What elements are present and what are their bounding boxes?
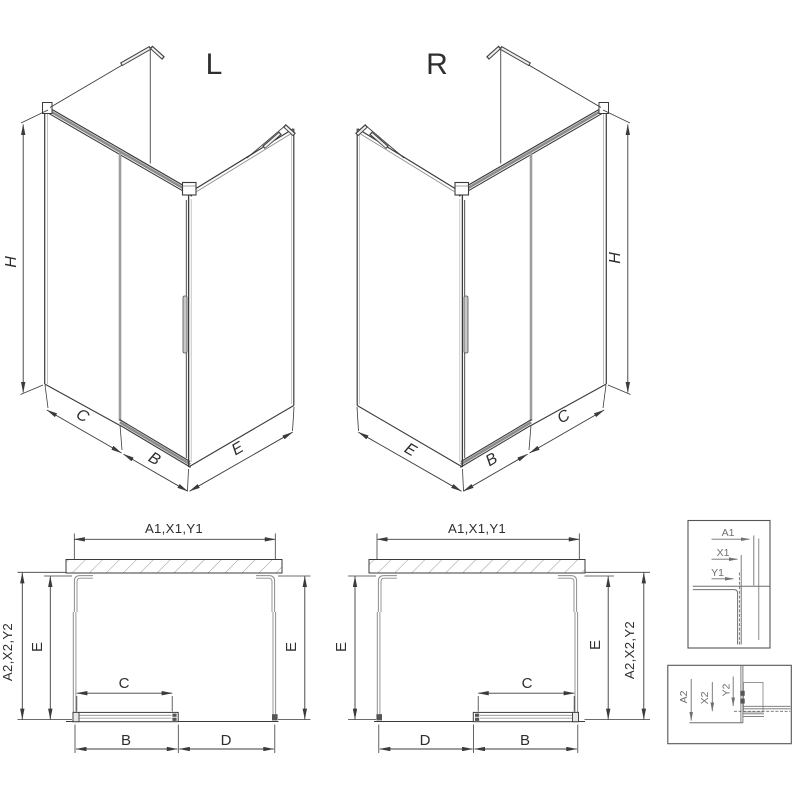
- iso-view-left: L H C B E: [3, 47, 295, 491]
- plan-view-left: A1,X1,Y1 A2,X2,Y2 E E C B D: [0, 521, 311, 753]
- dim-label-a1x1y1-right-plan: A1,X1,Y1: [448, 521, 506, 536]
- dim-label-d-left-plan: D: [221, 732, 232, 749]
- detail-dim-y2: Y2: [721, 683, 733, 696]
- dim-label-height-left: H: [3, 256, 20, 268]
- dim-label-a2x2y2-left-plan: A2,X2,Y2: [0, 623, 15, 681]
- dim-label-e1-right-plan: E: [333, 642, 350, 652]
- dim-label-b-right: B: [483, 450, 501, 470]
- dim-label-e1-left-plan: E: [29, 642, 46, 652]
- dim-label-e-left: E: [229, 439, 247, 459]
- detail-frame: [668, 665, 792, 743]
- shower-enclosure-technical-drawing: L H C B E R H E B C: [0, 0, 800, 800]
- dim-label-c-right: C: [554, 407, 573, 428]
- detail-top-profile: A1 X1 Y1: [688, 521, 770, 649]
- wall-hatch: [369, 560, 585, 574]
- variant-label-right: R: [426, 48, 448, 81]
- dim-label-height-right: H: [607, 252, 624, 264]
- iso-view-right: R H E B C: [357, 47, 631, 491]
- variant-label-left: L: [206, 48, 223, 81]
- detail-dim-y1: Y1: [711, 567, 724, 579]
- detail-dim-x1: X1: [717, 547, 730, 559]
- wall-hatch: [66, 560, 282, 574]
- detail-bottom-track: A2 X2 Y2: [668, 665, 792, 743]
- dim-label-a2x2y2-right-plan: A2,X2,Y2: [622, 621, 637, 679]
- door-track: [473, 712, 578, 721]
- plan-view-right: A1,X1,Y1 E E A2,X2,Y2 C D B: [333, 521, 650, 753]
- detail-dim-x2: X2: [699, 691, 711, 704]
- dim-label-b-right-plan: B: [520, 732, 530, 749]
- detail-dim-a2: A2: [678, 690, 690, 703]
- dim-label-b-left-plan: B: [121, 732, 131, 749]
- drawing-sheet: L H C B E R H E B C: [0, 0, 800, 800]
- wall-profile-foot: [376, 714, 382, 720]
- dim-label-e2-left-plan: E: [283, 642, 300, 652]
- dim-label-e-right: E: [401, 440, 419, 460]
- dim-label-c-left-plan: C: [119, 675, 130, 692]
- door-track: [73, 712, 178, 721]
- dim-label-d-right-plan: D: [420, 732, 431, 749]
- dim-label-c-right-plan: C: [522, 675, 533, 692]
- wall-profile-foot: [272, 714, 278, 720]
- dim-label-e2-right-plan: E: [587, 640, 604, 650]
- detail-dim-a1: A1: [722, 527, 735, 539]
- dim-label-b-left: B: [145, 449, 163, 469]
- dim-label-a1x1y1-left-plan: A1,X1,Y1: [145, 521, 203, 536]
